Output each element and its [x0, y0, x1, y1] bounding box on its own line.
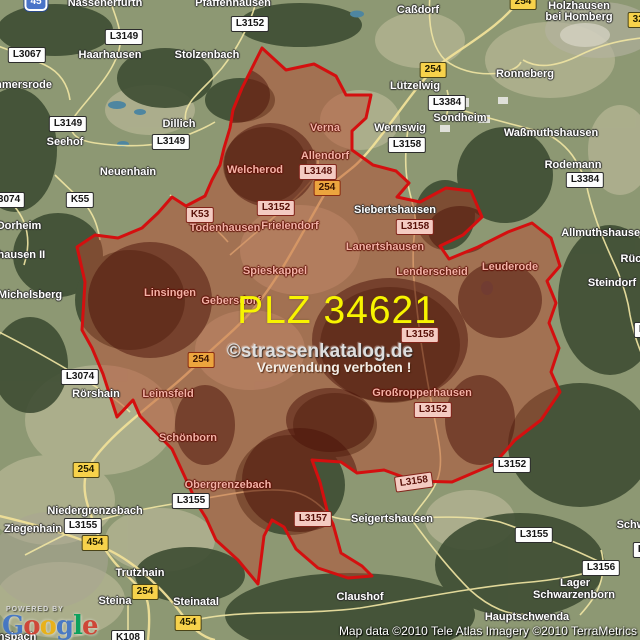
town-label: Ziegenhain — [4, 523, 62, 535]
town-label: Allendorf — [301, 150, 349, 162]
town-label: Haarhausen — [79, 49, 142, 61]
town-label: Lenderscheid — [396, 266, 468, 278]
road-badge: L3152 — [414, 402, 452, 418]
town-label: Lützelwig — [390, 80, 440, 92]
town-label: Hauptschwenda — [485, 611, 569, 623]
town-label: Schwarzenborn — [533, 589, 615, 601]
town-label: Rörshain — [72, 388, 120, 400]
road-badge: 254 — [420, 62, 447, 78]
town-label: Leuderode — [482, 261, 538, 273]
map-canvas[interactable]: PLZ 34621 ©strassenkatalog.de Verwendung… — [0, 0, 640, 640]
google-logo-letter: G — [2, 611, 23, 640]
town-label: Dillich — [162, 118, 195, 130]
town-label: Verna — [310, 122, 340, 134]
town-label: Schönborn — [159, 432, 217, 444]
town-label: bei Homberg — [545, 11, 612, 23]
google-logo-letter: o — [23, 611, 39, 640]
road-badge: 254 — [314, 180, 341, 196]
town-label: Pfaffenhausen — [195, 0, 271, 9]
town-label: Siebertshausen — [354, 204, 436, 216]
town-label: Todenhausen — [190, 222, 261, 234]
road-badge: L3152 — [493, 457, 531, 473]
map-attribution: Map data ©2010 Tele Atlas Imagery ©2010 … — [339, 624, 637, 638]
town-label: Michelsberg — [0, 289, 62, 301]
town-label: Welcherod — [227, 164, 283, 176]
town-label: Rück — [621, 253, 640, 265]
town-label: Ronneberg — [496, 68, 554, 80]
google-logo-letter: o — [40, 611, 56, 640]
town-label: Trutzhain — [116, 567, 165, 579]
town-label: Lanertshausen — [346, 241, 424, 253]
road-badge: L3157 — [633, 542, 640, 558]
road-badge: L3148 — [299, 164, 337, 180]
town-label: Steina — [98, 595, 131, 607]
town-label: Caßdorf — [397, 4, 439, 16]
town-label: Waßmuthshausen — [504, 127, 598, 139]
road-badge: L3152 — [257, 200, 295, 216]
road-badge: L3156 — [582, 560, 620, 576]
town-label: Lager — [560, 577, 590, 589]
town-label: Spieskappel — [243, 265, 307, 277]
road-badge: L3155 — [515, 527, 553, 543]
town-label: Wernswig — [374, 122, 426, 134]
town-label: Steindorf — [588, 277, 636, 289]
road-badge: L3149 — [105, 29, 143, 45]
road-badge: L3158 — [396, 219, 434, 235]
town-label: Sondheim — [433, 112, 486, 124]
road-badge: L3155 — [64, 518, 102, 534]
town-label: Leimsfeld — [142, 388, 193, 400]
town-label: Dorheim — [0, 220, 41, 232]
road-badge: L3158 — [388, 137, 426, 153]
road-badge: 454 — [175, 615, 202, 631]
town-label: Schwa — [617, 519, 640, 531]
road-badge: 323 — [628, 12, 640, 28]
town-label: Obergrenzebach — [185, 479, 272, 491]
road-badge: L3152 — [231, 16, 269, 32]
town-label: Allmuthshausen — [561, 227, 640, 239]
google-logo[interactable]: Google — [2, 611, 98, 640]
town-label: Seehof — [47, 136, 84, 148]
town-label: Großropperhausen — [372, 387, 472, 399]
road-badge: 254 — [188, 352, 215, 368]
plz-area-label: PLZ 34621 — [237, 289, 437, 333]
road-badge: L3155 — [172, 493, 210, 509]
town-label: Frielendorf — [261, 220, 318, 232]
road-badge: K53 — [186, 207, 214, 223]
town-label: Rodemann — [545, 159, 602, 171]
road-badge: L3149 — [152, 134, 190, 150]
road-badge: 454 — [82, 535, 109, 551]
road-badge: K55 — [66, 192, 94, 208]
road-badge: L3155 — [634, 322, 640, 338]
google-logo-letter: l — [73, 611, 82, 640]
road-badge: 45 — [24, 0, 47, 11]
google-logo-letter: g — [56, 611, 73, 640]
road-badge: 254 — [132, 584, 159, 600]
town-label: Steinatal — [173, 596, 219, 608]
road-badge: 254 — [510, 0, 537, 10]
road-badge: L3074 — [0, 192, 25, 208]
town-label: Stolzenbach — [175, 49, 240, 61]
road-badge: L3157 — [294, 511, 332, 527]
town-label: Neuenhain — [100, 166, 156, 178]
road-badge: L3067 — [8, 47, 46, 63]
road-badge: K108 — [111, 630, 145, 640]
road-badge: L3074 — [61, 369, 99, 385]
town-label: Linsingen — [144, 287, 196, 299]
watermark-verboten: Verwendung verboten ! — [257, 359, 412, 375]
town-label: mmersrode — [0, 79, 52, 91]
road-badge: L3384 — [566, 172, 604, 188]
town-label: Niedergrenzebach — [47, 505, 142, 517]
road-badge: L3384 — [428, 95, 466, 111]
town-label: nhausen II — [0, 249, 45, 261]
town-label: Claushof — [336, 591, 383, 603]
town-label: Seigertshausen — [351, 513, 433, 525]
road-badge: 254 — [73, 462, 100, 478]
google-logo-letter: e — [82, 611, 98, 640]
road-badge: L3149 — [49, 116, 87, 132]
town-label: Nassenerfurth — [68, 0, 143, 9]
